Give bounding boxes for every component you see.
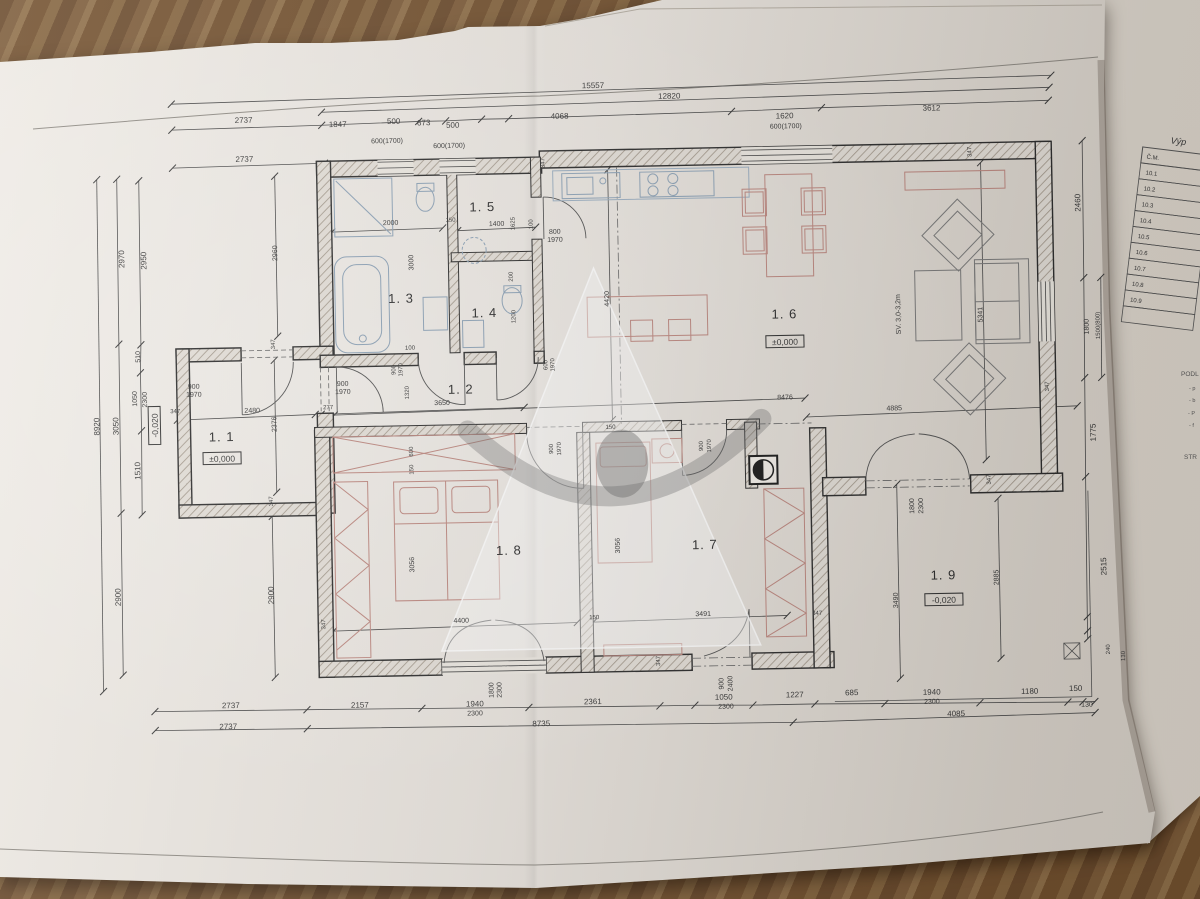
dimension-label: 4068 bbox=[551, 112, 570, 121]
elevation-mark: ±0,000 bbox=[203, 452, 241, 465]
dimension-label: 150 bbox=[446, 218, 457, 224]
dimension-label: 1625 bbox=[510, 216, 516, 230]
dimension-label: 240 bbox=[1106, 644, 1112, 655]
washbasin bbox=[462, 320, 484, 347]
dimension-label: 347 bbox=[967, 146, 973, 157]
dimension-label: 1970 bbox=[707, 439, 713, 453]
dimension-label: 347 bbox=[269, 496, 275, 507]
dimension-label: 347 bbox=[987, 474, 993, 485]
dimension-label: 347 bbox=[321, 619, 327, 630]
dimension-label: 150 bbox=[409, 464, 415, 475]
dining-chair bbox=[801, 188, 826, 215]
dimension-label: 3490 bbox=[893, 592, 900, 608]
dimension-label: 900 bbox=[337, 381, 349, 388]
kitchen-sink bbox=[562, 173, 620, 199]
table-row-label: 10.6 bbox=[1135, 250, 1148, 257]
dimension-label: 3050 bbox=[111, 417, 120, 436]
dimension-label: 100 bbox=[529, 219, 535, 230]
dimension-label: 347 bbox=[170, 409, 181, 415]
side-note: PODL bbox=[1181, 371, 1199, 378]
room-label: 1. 4 bbox=[471, 305, 497, 320]
dimension-label: 4420 bbox=[604, 291, 611, 307]
dimension-label: 2361 bbox=[584, 697, 603, 706]
window bbox=[1038, 281, 1055, 341]
dimension-label: 2376 bbox=[271, 416, 278, 432]
dimension-label: 200 bbox=[509, 271, 515, 282]
dimension-label: 2157 bbox=[351, 700, 370, 709]
dimension-label: 600 bbox=[409, 446, 415, 457]
table-row-label: 10.1 bbox=[1145, 171, 1158, 178]
table-title: Výp bbox=[1170, 135, 1187, 147]
terrace-outline bbox=[831, 491, 1092, 702]
dimension-label: 2737 bbox=[222, 701, 241, 710]
wardrobe bbox=[764, 488, 807, 637]
dimension-label: 510 bbox=[135, 351, 142, 363]
dimension-label: 347 bbox=[812, 611, 823, 617]
dimension-label: 800 bbox=[549, 229, 561, 236]
dimension-label: 2960 bbox=[272, 245, 279, 261]
room-label: 1. 5 bbox=[469, 199, 495, 214]
dimension-label: 1775 bbox=[1089, 423, 1098, 442]
dimension-label: 900 bbox=[549, 443, 555, 454]
table-row-label: 10.3 bbox=[1141, 202, 1154, 209]
washbasin bbox=[423, 297, 448, 330]
dimension-label: 500 bbox=[387, 117, 401, 126]
dimension-label: 500 bbox=[446, 121, 460, 130]
side-notes: PODL- p- b- P- fSTR bbox=[1181, 371, 1199, 461]
dimension-label: 130 bbox=[1121, 650, 1127, 661]
armchair bbox=[933, 342, 1006, 415]
plan-group: 1555712820273718475006735004068162036122… bbox=[86, 71, 1128, 737]
dimension-label: 2300 bbox=[142, 392, 149, 408]
dimension-label: 2970 bbox=[117, 250, 126, 269]
dimension-label: 130 bbox=[1081, 702, 1093, 709]
dimension-label: 3056 bbox=[409, 557, 416, 573]
dimension-label: 1800 bbox=[909, 498, 916, 514]
dining-chair bbox=[743, 227, 768, 254]
dimension-label: 600(1700) bbox=[433, 143, 465, 151]
dimension-label: 685 bbox=[845, 688, 859, 697]
dimension-label: 600 bbox=[543, 359, 549, 370]
dimension-label: 4400 bbox=[453, 618, 469, 625]
dimension-label: 347 bbox=[1045, 381, 1051, 392]
dimension-label: 5341 bbox=[977, 307, 984, 323]
dimension-label: 1510 bbox=[133, 461, 142, 480]
svg-text:±0,000: ±0,000 bbox=[772, 337, 798, 348]
dimension-label: 2300 bbox=[718, 703, 734, 710]
toilet bbox=[416, 183, 435, 211]
side-note: STR bbox=[1184, 454, 1197, 461]
dimension-label: 900 bbox=[188, 384, 200, 391]
dimension-label: 1940 bbox=[923, 687, 942, 696]
folded-page-edge bbox=[545, 5, 1102, 26]
dimension-label: 1320 bbox=[405, 385, 411, 399]
dining-table bbox=[765, 174, 814, 277]
dimension-label: 347 bbox=[656, 655, 662, 666]
elevation-mark: -0,020 bbox=[925, 593, 963, 606]
room-label: 1. 7 bbox=[692, 537, 718, 552]
dimension-label: 2515 bbox=[1099, 557, 1108, 576]
dimension-label: 4085 bbox=[947, 709, 966, 718]
dimension-label: 1050 bbox=[715, 692, 734, 701]
dimension-label: 3612 bbox=[923, 103, 942, 112]
dimension-label: 2300 bbox=[918, 498, 925, 514]
dimension-label: 1970 bbox=[186, 392, 202, 399]
living-furniture bbox=[913, 198, 1031, 416]
dimension-label: 1620 bbox=[776, 111, 795, 120]
dimension-label: 150 bbox=[1069, 684, 1083, 693]
dimension-label: 2737 bbox=[235, 155, 254, 164]
table-row-label: 10.8 bbox=[1132, 282, 1145, 289]
coffee-table bbox=[915, 270, 962, 341]
dimension-label: 277 bbox=[323, 405, 334, 411]
dimension-label: 1970 bbox=[550, 357, 556, 371]
window bbox=[439, 158, 475, 175]
ceiling-height-note: SV. 3,0-3,2m bbox=[895, 294, 903, 335]
dimension-label: 900 bbox=[391, 364, 397, 375]
dimension-label: 1970 bbox=[557, 441, 563, 455]
dimension-label: 2480 bbox=[244, 408, 260, 415]
dimension-label: 1050 bbox=[132, 391, 139, 407]
dimension-label: 12820 bbox=[658, 91, 681, 100]
room-label: 1. 6 bbox=[771, 306, 797, 321]
dimension-label: 1200 bbox=[511, 309, 517, 323]
dimension-label: 1180 bbox=[1021, 687, 1039, 696]
bar-stool bbox=[631, 320, 653, 341]
room-list-table: VýpČ.M.10.110.210.310.410.510.610.710.81… bbox=[1121, 132, 1200, 330]
dimension-label: 2900 bbox=[114, 588, 123, 607]
floor-plan-drawing: 1555712820273718475006735004068162036122… bbox=[0, 0, 1200, 899]
dimension-label: 8476 bbox=[777, 394, 793, 401]
table-row-label: 10.2 bbox=[1143, 186, 1156, 193]
chimney bbox=[749, 456, 778, 485]
dimension-label: 1800 bbox=[488, 682, 495, 698]
dimension-label: 1970 bbox=[547, 237, 563, 244]
printed-frame-bottom bbox=[0, 812, 1103, 865]
dimension-label: 100 bbox=[405, 346, 416, 352]
elevation-mark: -0,020 bbox=[148, 406, 161, 444]
dimension-label: 2300 bbox=[467, 710, 483, 717]
svg-text:-0,020: -0,020 bbox=[932, 595, 957, 605]
dimension-label: 2737 bbox=[219, 722, 238, 731]
side-note: - P bbox=[1188, 411, 1195, 417]
dimension-label: 3000 bbox=[408, 255, 415, 271]
toilet bbox=[502, 285, 523, 313]
dining-chair bbox=[802, 226, 827, 253]
window bbox=[377, 160, 413, 177]
dimension-label: 1940 bbox=[466, 699, 485, 708]
window bbox=[741, 145, 832, 164]
armchair bbox=[921, 198, 994, 271]
table-row-label: 10.9 bbox=[1130, 298, 1143, 305]
dimension-label: 3056 bbox=[615, 538, 622, 554]
room-label: 1. 8 bbox=[496, 543, 522, 558]
table-row-label: 10.4 bbox=[1139, 218, 1152, 225]
room-label: 1. 9 bbox=[930, 567, 956, 582]
side-note: - f bbox=[1189, 423, 1194, 429]
dimension-label: 2900 bbox=[267, 586, 276, 605]
dimension-label: 3491 bbox=[695, 611, 711, 618]
side-note: - p bbox=[1189, 386, 1195, 392]
dimension-label: 8920 bbox=[92, 417, 101, 436]
dimension-label: 600(1700) bbox=[770, 123, 802, 131]
dimension-label: 1800 bbox=[1084, 319, 1091, 335]
dimension-label: 1227 bbox=[786, 690, 805, 699]
room-label: 1. 1 bbox=[209, 429, 235, 444]
table-header: Č.M. bbox=[1146, 154, 1160, 163]
dimension-label: 2400 bbox=[727, 676, 734, 692]
dimension-label: 600(1700) bbox=[371, 138, 403, 146]
dimension-label: 4885 bbox=[886, 405, 902, 412]
dimension-label: 1847 bbox=[329, 120, 348, 129]
dimension-label: 2737 bbox=[235, 116, 254, 125]
drain-box bbox=[1064, 643, 1080, 659]
sheet-edge-shadow bbox=[1101, 60, 1152, 812]
dimension-label: 8735 bbox=[532, 719, 551, 728]
dimension-label: 15557 bbox=[582, 81, 605, 90]
cooktop bbox=[640, 171, 714, 197]
dimension-label: 2950 bbox=[139, 251, 148, 270]
elevation-mark: ±0,000 bbox=[766, 335, 804, 348]
table-row-label: 10.7 bbox=[1133, 266, 1146, 273]
dimension-label: 1400 bbox=[489, 221, 505, 228]
dining-chair bbox=[742, 189, 767, 216]
dimension-label: 347 bbox=[540, 157, 546, 168]
photo-scene: 1555712820273718475006735004068162036122… bbox=[0, 0, 1200, 899]
shower bbox=[334, 178, 393, 237]
dimension-label: 2460 bbox=[1073, 193, 1082, 212]
dimension-label: 150 bbox=[589, 615, 600, 621]
dimension-label: 673 bbox=[417, 118, 431, 127]
bar-stool bbox=[669, 319, 691, 340]
svg-text:-0,020: -0,020 bbox=[150, 413, 160, 438]
dimension-label: 1500(800) bbox=[1095, 312, 1102, 339]
wardrobe bbox=[334, 481, 371, 658]
sideboard bbox=[905, 170, 1005, 190]
dimension-label: 3650 bbox=[434, 400, 450, 407]
dimension-label: 1970 bbox=[335, 389, 351, 396]
dimension-label: 2000 bbox=[383, 220, 399, 227]
dimension-label: 2885 bbox=[993, 569, 1000, 585]
dimension-label: 150 bbox=[606, 425, 617, 431]
svg-text:±0,000: ±0,000 bbox=[209, 454, 235, 465]
dimension-label: 2300 bbox=[496, 682, 503, 698]
side-note: - b bbox=[1189, 398, 1195, 404]
dimension-label: 900 bbox=[699, 440, 705, 451]
room-label: 1. 3 bbox=[388, 291, 414, 306]
dimension-label: 900 bbox=[718, 678, 725, 690]
bathtub bbox=[334, 256, 390, 353]
dimension-label: 347 bbox=[271, 339, 277, 350]
table-row-label: 10.5 bbox=[1137, 234, 1150, 241]
room-label: 1. 2 bbox=[448, 381, 474, 396]
watermark-logo bbox=[435, 265, 766, 651]
dimension-label: 2300 bbox=[924, 699, 940, 706]
dimension-label: 1970 bbox=[398, 362, 404, 376]
